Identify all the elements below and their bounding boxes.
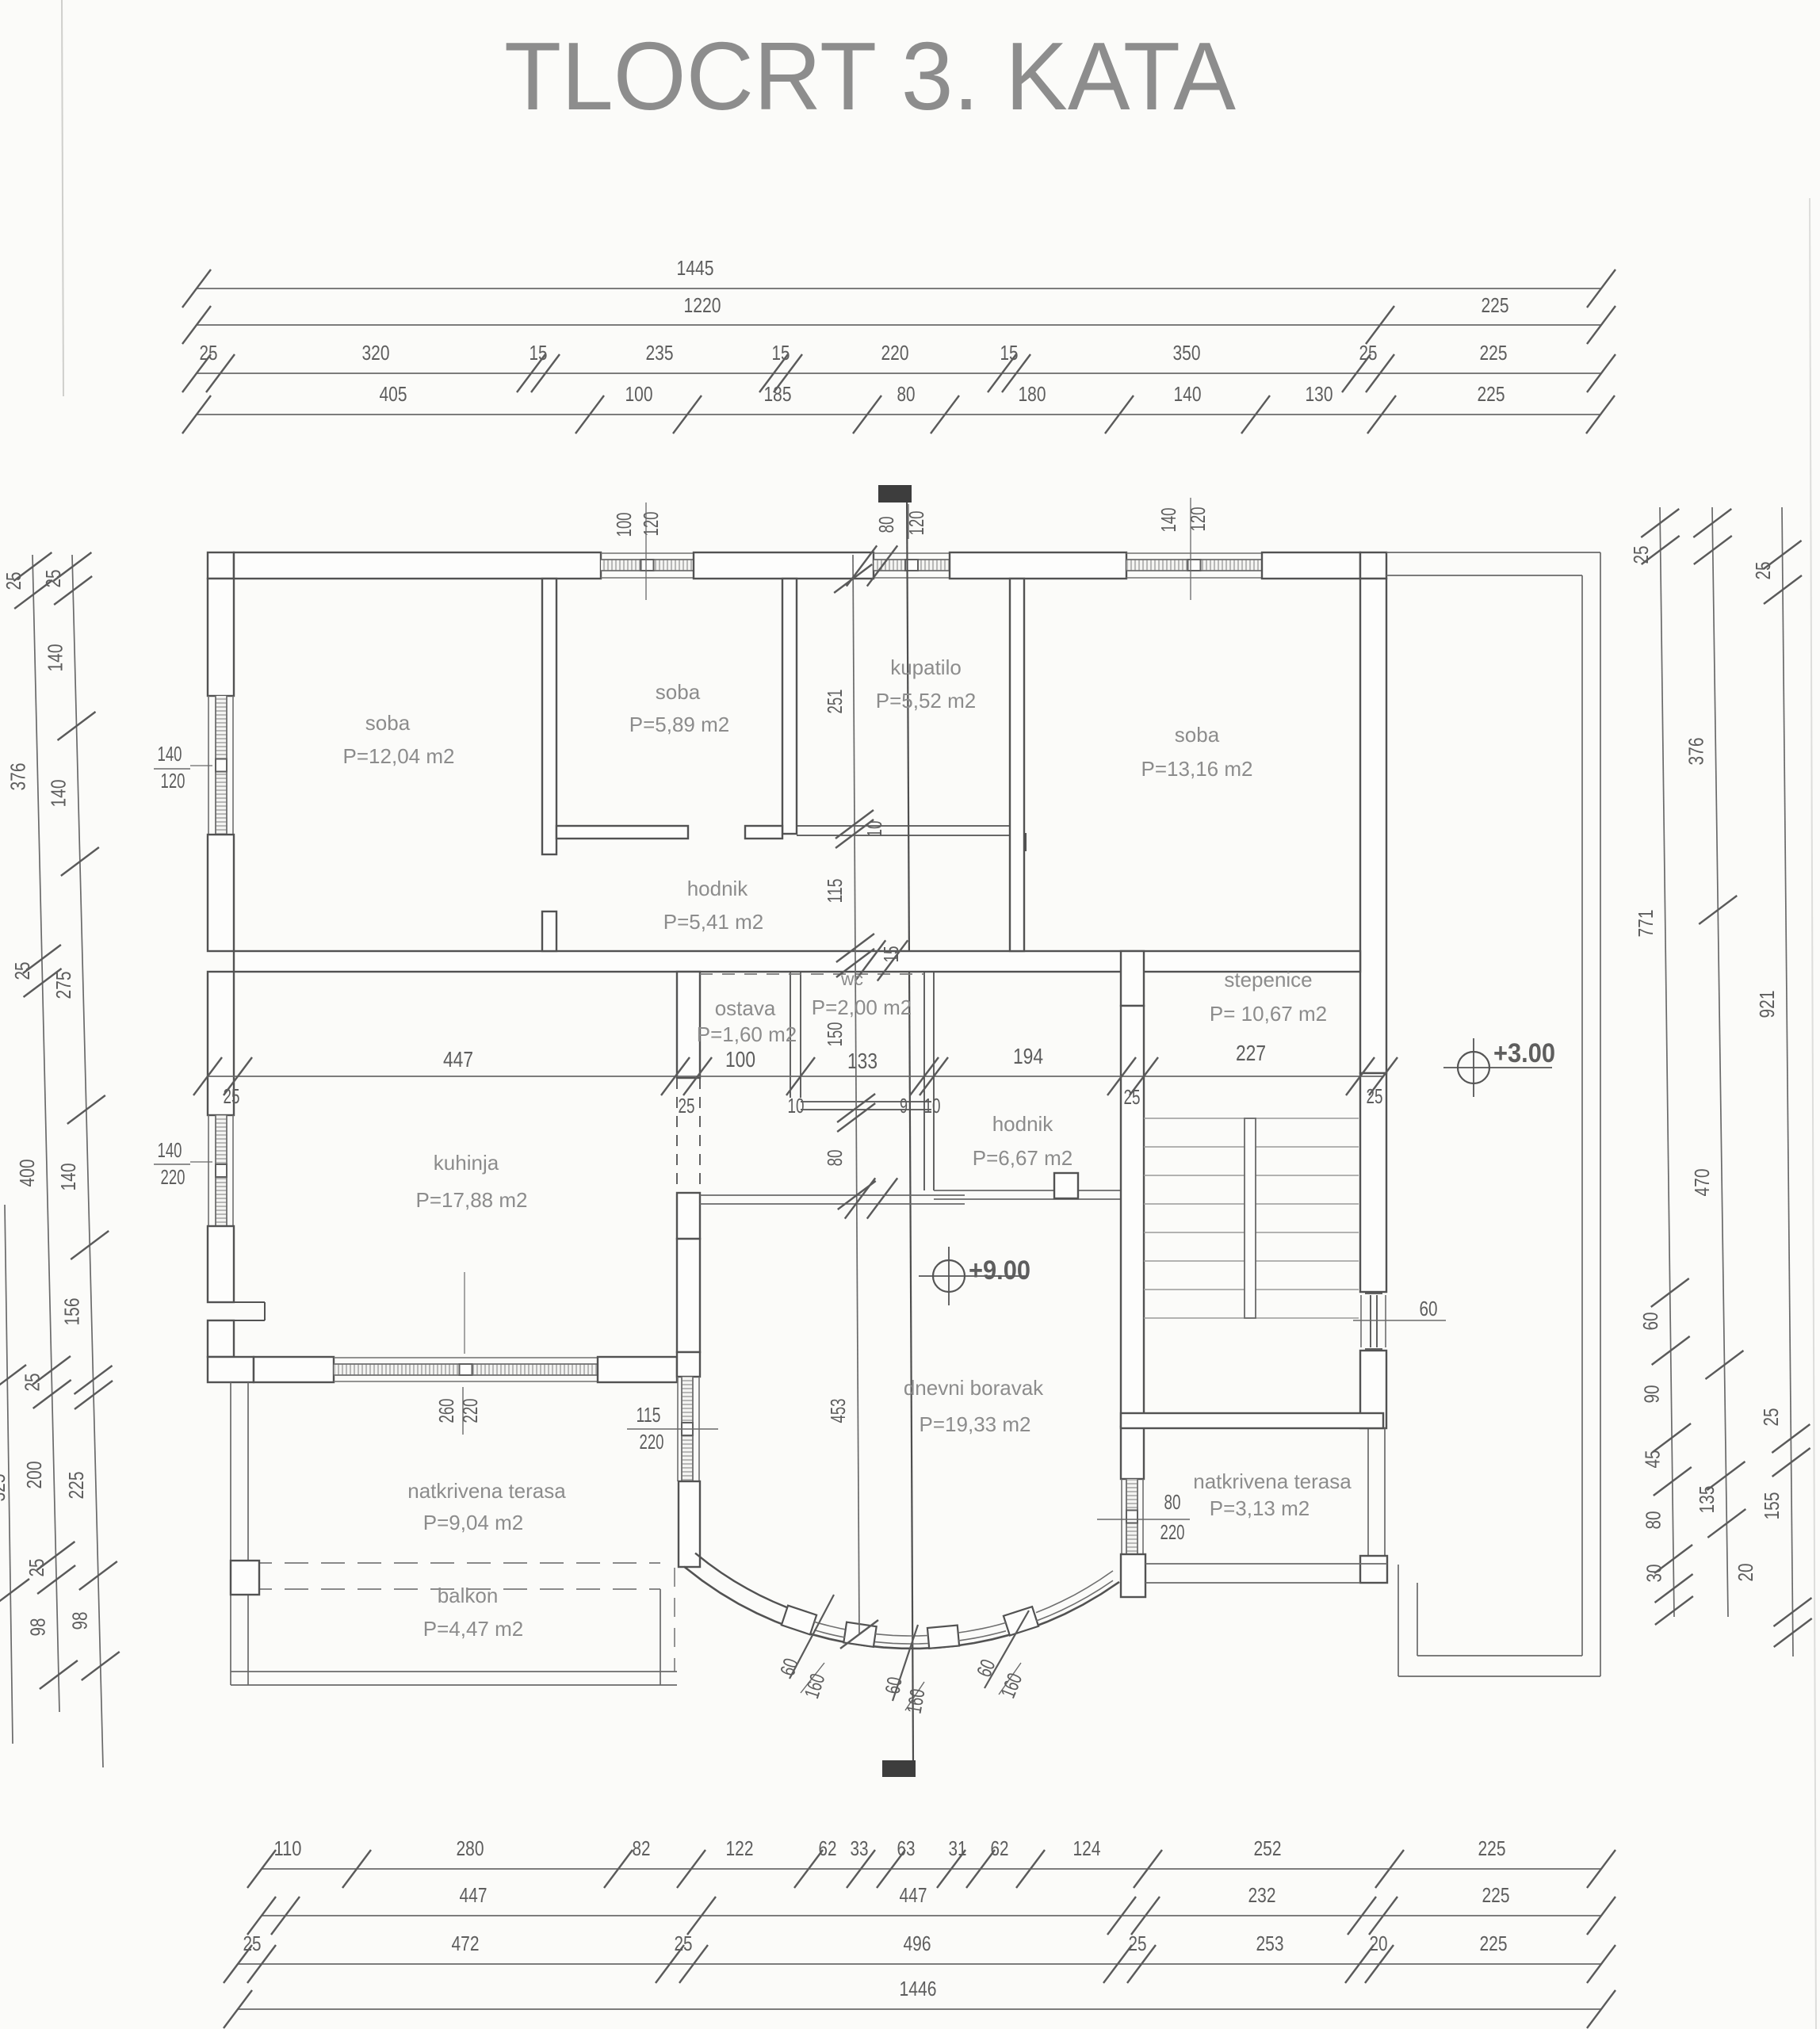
svg-text:kuhinja: kuhinja xyxy=(434,1151,499,1175)
svg-text:P=5,52 m2: P=5,52 m2 xyxy=(876,689,976,713)
svg-text:325: 325 xyxy=(0,1474,10,1502)
svg-text:P=17,88 m2: P=17,88 m2 xyxy=(416,1188,528,1212)
svg-text:31: 31 xyxy=(949,1836,967,1860)
svg-text:140: 140 xyxy=(56,1164,80,1191)
svg-text:140: 140 xyxy=(158,1138,182,1162)
svg-text:45: 45 xyxy=(1640,1450,1664,1469)
svg-text:133: 133 xyxy=(847,1049,877,1073)
svg-text:80: 80 xyxy=(874,517,898,533)
svg-text:15: 15 xyxy=(1000,341,1019,365)
svg-text:25: 25 xyxy=(224,1084,240,1108)
svg-text:25: 25 xyxy=(1124,1085,1141,1109)
svg-text:hodnik: hodnik xyxy=(687,877,749,900)
svg-text:20: 20 xyxy=(1370,1932,1388,1955)
svg-text:25: 25 xyxy=(675,1932,693,1955)
svg-text:100: 100 xyxy=(725,1047,755,1072)
svg-text:180: 180 xyxy=(1019,382,1046,406)
svg-text:275: 275 xyxy=(52,972,75,999)
svg-text:220: 220 xyxy=(640,1430,664,1454)
svg-text:447: 447 xyxy=(443,1047,473,1072)
svg-text:225: 225 xyxy=(64,1472,88,1500)
svg-text:376: 376 xyxy=(6,763,30,791)
svg-text:P= 10,67 m2: P= 10,67 m2 xyxy=(1210,1002,1327,1026)
svg-text:80: 80 xyxy=(823,1150,847,1167)
svg-text:921: 921 xyxy=(1755,991,1779,1018)
svg-text:25: 25 xyxy=(1129,1932,1147,1955)
svg-text:194: 194 xyxy=(1013,1044,1043,1068)
svg-text:80: 80 xyxy=(1164,1490,1181,1514)
svg-text:200: 200 xyxy=(22,1462,46,1489)
svg-text:P=12,04 m2: P=12,04 m2 xyxy=(343,744,455,768)
svg-text:98: 98 xyxy=(67,1612,91,1630)
svg-text:+3.00: +3.00 xyxy=(1493,1038,1555,1068)
svg-text:dnevni boravak: dnevni boravak xyxy=(904,1376,1044,1400)
svg-text:122: 122 xyxy=(726,1836,754,1860)
svg-text:P=3,13 m2: P=3,13 m2 xyxy=(1210,1496,1310,1520)
svg-text:20: 20 xyxy=(1734,1564,1757,1582)
svg-text:771: 771 xyxy=(1634,910,1657,938)
svg-text:470: 470 xyxy=(1690,1169,1714,1197)
svg-text:225: 225 xyxy=(1480,1932,1508,1955)
svg-text:+9.00: +9.00 xyxy=(969,1255,1030,1286)
svg-text:80: 80 xyxy=(897,382,916,406)
svg-text:ostava: ostava xyxy=(715,996,776,1020)
svg-text:10: 10 xyxy=(788,1094,805,1118)
svg-text:25: 25 xyxy=(679,1094,695,1118)
svg-text:225: 225 xyxy=(1482,1883,1510,1907)
svg-text:63: 63 xyxy=(897,1836,916,1860)
svg-text:496: 496 xyxy=(904,1932,931,1955)
svg-text:110: 110 xyxy=(274,1836,302,1860)
svg-text:10: 10 xyxy=(862,821,886,838)
svg-text:320: 320 xyxy=(362,341,390,365)
svg-text:25: 25 xyxy=(1629,546,1653,564)
svg-text:25: 25 xyxy=(1367,1084,1383,1108)
svg-text:447: 447 xyxy=(460,1883,487,1907)
svg-text:156: 156 xyxy=(59,1298,83,1326)
svg-text:253: 253 xyxy=(1256,1932,1284,1955)
svg-text:120: 120 xyxy=(161,769,185,793)
svg-text:225: 225 xyxy=(1478,382,1505,406)
svg-text:140: 140 xyxy=(1157,508,1180,533)
svg-text:9: 9 xyxy=(900,1094,908,1118)
svg-text:252: 252 xyxy=(1254,1836,1282,1860)
svg-text:25: 25 xyxy=(1359,341,1378,365)
svg-text:82: 82 xyxy=(633,1836,651,1860)
svg-text:447: 447 xyxy=(900,1883,927,1907)
svg-text:60: 60 xyxy=(1638,1313,1662,1331)
svg-text:80: 80 xyxy=(1641,1511,1665,1530)
svg-text:90: 90 xyxy=(1639,1385,1663,1404)
svg-text:natkrivena terasa: natkrivena terasa xyxy=(1193,1469,1352,1493)
svg-text:98: 98 xyxy=(26,1618,50,1637)
svg-text:1445: 1445 xyxy=(677,256,714,280)
svg-text:150: 150 xyxy=(823,1022,847,1047)
svg-text:115: 115 xyxy=(823,879,847,904)
svg-text:P=6,67 m2: P=6,67 m2 xyxy=(973,1146,1072,1170)
svg-text:stepenice: stepenice xyxy=(1224,968,1312,992)
svg-text:P=4,47 m2: P=4,47 m2 xyxy=(423,1617,523,1641)
svg-text:25: 25 xyxy=(2,572,25,590)
svg-text:251: 251 xyxy=(823,690,847,714)
svg-text:P=5,89 m2: P=5,89 m2 xyxy=(629,713,729,736)
svg-text:220: 220 xyxy=(161,1165,185,1189)
svg-text:235: 235 xyxy=(646,341,674,365)
svg-text:25: 25 xyxy=(200,341,218,365)
svg-text:15: 15 xyxy=(879,946,903,963)
svg-text:100: 100 xyxy=(612,513,636,537)
svg-text:220: 220 xyxy=(458,1399,482,1423)
svg-text:1220: 1220 xyxy=(684,293,721,317)
svg-text:220: 220 xyxy=(881,341,909,365)
svg-text:wc: wc xyxy=(840,969,863,989)
svg-text:30: 30 xyxy=(1642,1565,1665,1583)
svg-text:155: 155 xyxy=(1760,1492,1784,1520)
svg-text:60: 60 xyxy=(1420,1297,1438,1320)
svg-text:natkrivena terasa: natkrivena terasa xyxy=(407,1479,566,1503)
svg-text:376: 376 xyxy=(1684,738,1707,766)
svg-text:120: 120 xyxy=(1186,507,1210,532)
svg-text:135: 135 xyxy=(1695,1486,1719,1514)
svg-text:472: 472 xyxy=(452,1932,480,1955)
svg-text:P=1,60 m2: P=1,60 m2 xyxy=(697,1022,797,1046)
svg-text:25: 25 xyxy=(1759,1408,1783,1427)
svg-text:1446: 1446 xyxy=(900,1977,937,2000)
svg-text:15: 15 xyxy=(772,341,790,365)
svg-text:soba: soba xyxy=(656,680,701,704)
svg-text:P=5,41 m2: P=5,41 m2 xyxy=(663,910,763,934)
svg-text:225: 225 xyxy=(1478,1836,1506,1860)
svg-text:350: 350 xyxy=(1173,341,1201,365)
svg-text:227: 227 xyxy=(1236,1041,1266,1065)
svg-text:453: 453 xyxy=(826,1399,850,1423)
svg-text:25: 25 xyxy=(10,962,34,980)
svg-text:25: 25 xyxy=(41,570,65,588)
svg-text:25: 25 xyxy=(1751,562,1775,580)
svg-text:225: 225 xyxy=(1482,293,1509,317)
svg-text:P=9,04 m2: P=9,04 m2 xyxy=(423,1511,523,1534)
svg-text:62: 62 xyxy=(819,1836,837,1860)
svg-text:balkon: balkon xyxy=(438,1584,499,1607)
svg-text:120: 120 xyxy=(639,512,663,537)
svg-text:15: 15 xyxy=(530,341,548,365)
svg-text:P=2,00 m2: P=2,00 m2 xyxy=(812,995,912,1019)
svg-text:124: 124 xyxy=(1073,1836,1101,1860)
svg-text:P=19,33 m2: P=19,33 m2 xyxy=(920,1412,1031,1436)
svg-text:140: 140 xyxy=(158,742,182,766)
svg-text:160: 160 xyxy=(902,1687,930,1716)
svg-text:260: 260 xyxy=(434,1399,458,1423)
svg-text:140: 140 xyxy=(47,780,71,808)
svg-text:100: 100 xyxy=(625,382,653,406)
svg-text:P=13,16 m2: P=13,16 m2 xyxy=(1141,757,1253,781)
svg-text:220: 220 xyxy=(1160,1520,1185,1544)
svg-text:kupatilo: kupatilo xyxy=(890,655,962,679)
svg-text:140: 140 xyxy=(1174,382,1202,406)
svg-text:hodnik: hodnik xyxy=(992,1112,1054,1136)
svg-text:25: 25 xyxy=(243,1932,262,1955)
svg-text:280: 280 xyxy=(457,1836,484,1860)
svg-text:25: 25 xyxy=(20,1374,44,1392)
svg-text:130: 130 xyxy=(1306,382,1333,406)
svg-text:TLOCRT 3. KATA: TLOCRT 3. KATA xyxy=(504,22,1237,130)
svg-text:400: 400 xyxy=(15,1160,39,1187)
svg-text:232: 232 xyxy=(1248,1883,1276,1907)
svg-text:33: 33 xyxy=(851,1836,869,1860)
svg-text:405: 405 xyxy=(380,382,407,406)
svg-text:10: 10 xyxy=(924,1094,941,1118)
svg-text:225: 225 xyxy=(1480,341,1508,365)
svg-text:soba: soba xyxy=(365,711,411,735)
svg-text:115: 115 xyxy=(637,1403,661,1427)
svg-text:185: 185 xyxy=(764,382,792,406)
svg-text:62: 62 xyxy=(991,1836,1009,1860)
svg-text:25: 25 xyxy=(25,1559,48,1577)
svg-text:soba: soba xyxy=(1175,723,1220,747)
svg-text:140: 140 xyxy=(43,644,67,672)
